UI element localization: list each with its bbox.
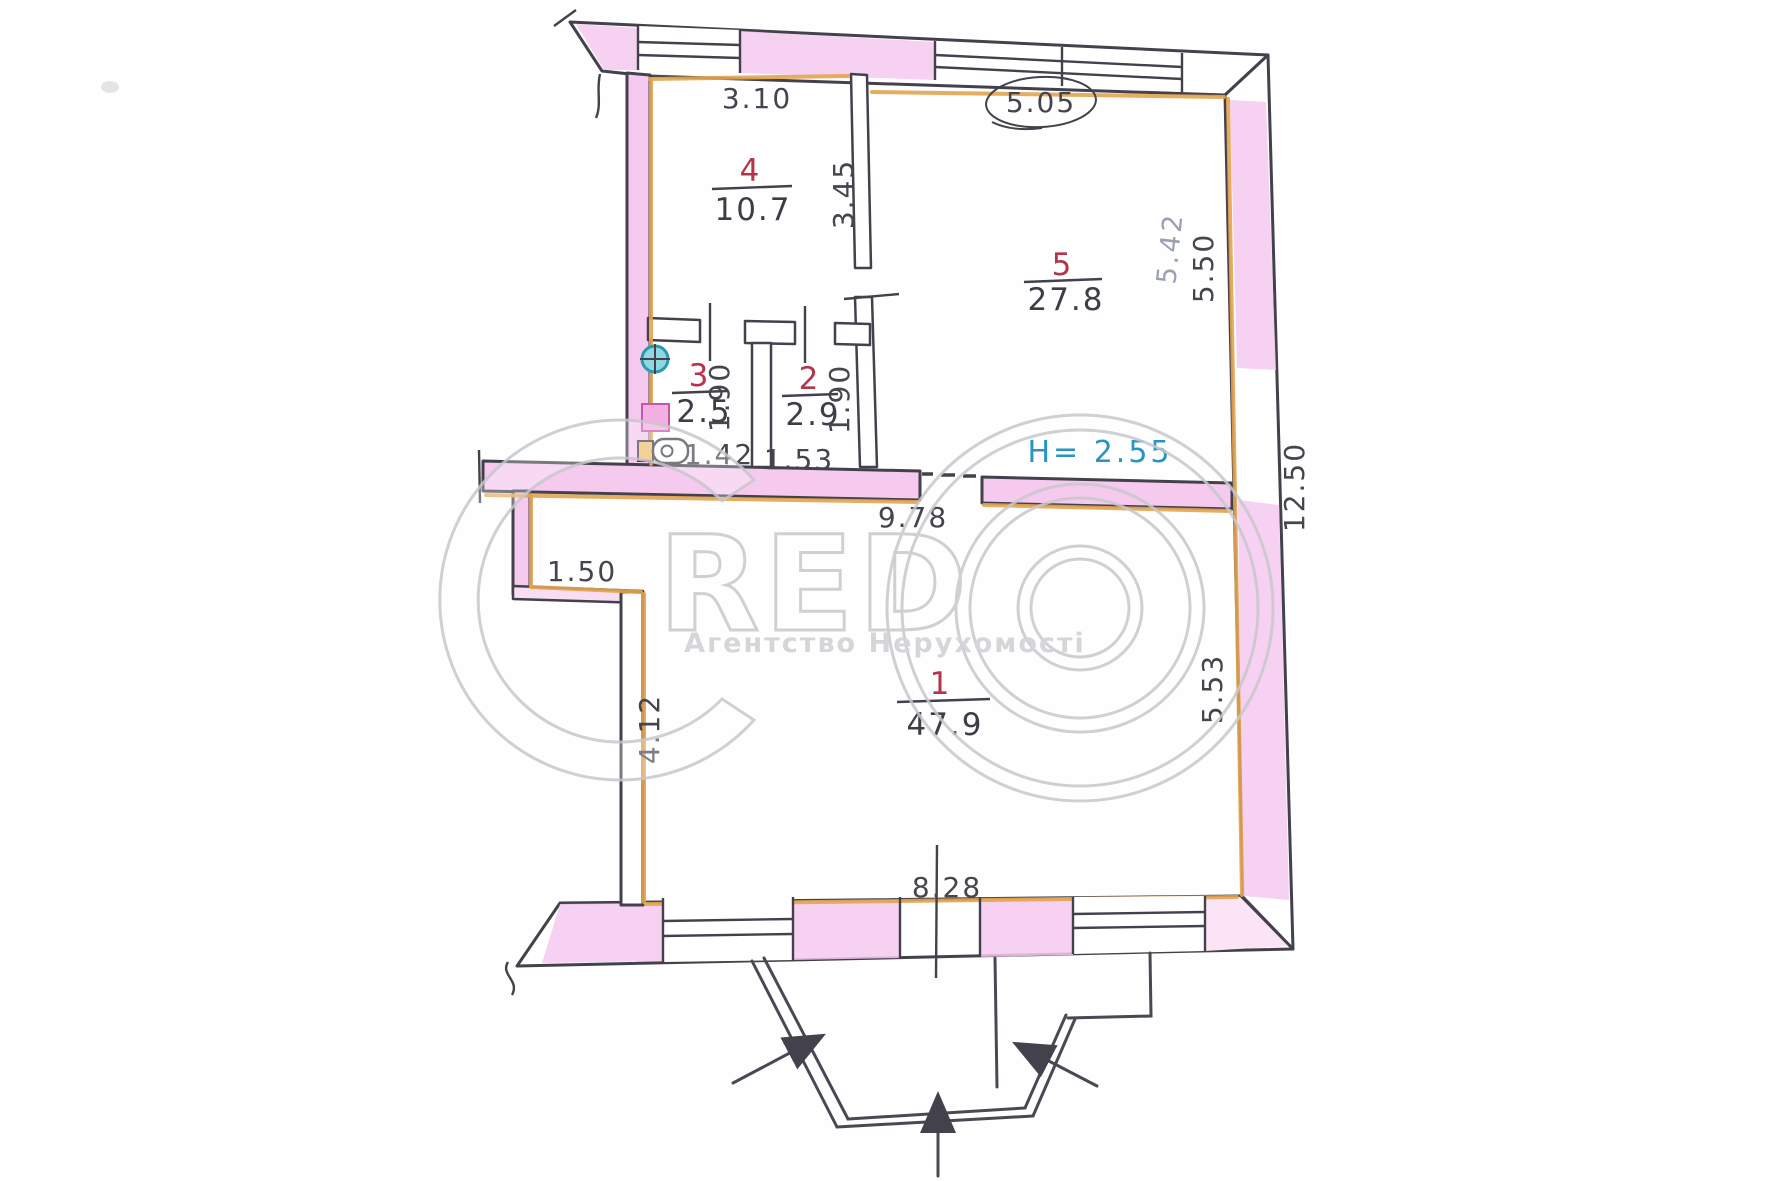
room4-number: 4: [740, 153, 761, 189]
floorplan-scan: 3.10 4 10.7 3.45 5.05 5 27.8 5.42 5.50 3…: [0, 0, 1772, 1181]
dim-room5-depth: 5.50: [1187, 233, 1220, 303]
dim-room5-pencil: 5.42: [1151, 211, 1189, 286]
room5-number: 5: [1052, 247, 1073, 283]
dim-room1-width: 8.28: [912, 871, 982, 904]
entrance-arrow-right: [1020, 1046, 1097, 1086]
room4-area: 10.7: [714, 192, 791, 228]
dim-room2-depth: 1.90: [823, 364, 856, 434]
exterior-walls: [483, 22, 1293, 966]
room4-bottom-wall-c: [835, 323, 870, 345]
scan-smudge: [101, 81, 119, 93]
room5-area: 27.8: [1027, 282, 1104, 318]
room4-bottom-wall-a: [648, 318, 700, 342]
entrance-arrow-left: [733, 1038, 818, 1083]
window-top-left: [638, 26, 740, 73]
dim-room5-width: 5.05: [1006, 86, 1076, 119]
break-line-top-left: [596, 74, 600, 118]
room4-bottom-wall-b: [745, 321, 795, 344]
floorplan-drawing: 3.10 4 10.7 3.45 5.05 5 27.8 5.42 5.50 3…: [0, 0, 1772, 1181]
dim-notch: 1.50: [547, 555, 617, 588]
dim-room4-width: 3.10: [722, 82, 792, 115]
window-bottom-left: [663, 897, 793, 962]
window-bottom-right: [1073, 896, 1205, 954]
notch-wall-vertical: [513, 491, 530, 594]
dim-room3-depth: 1.90: [703, 362, 736, 432]
room2-number: 2: [799, 361, 820, 397]
watermark-tagline: Агентство Нерухомості: [684, 628, 1086, 659]
break-line-bottom-left: [506, 962, 514, 995]
dim-building-depth: 12.50: [1278, 442, 1311, 532]
bay-window: [733, 953, 1151, 1176]
room1-number: 1: [930, 666, 951, 702]
dim-room2-width: 1.53: [764, 443, 834, 476]
dim-room4-depth: 3.45: [827, 159, 860, 229]
ceiling-height-note: H= 2.55: [1027, 435, 1172, 470]
